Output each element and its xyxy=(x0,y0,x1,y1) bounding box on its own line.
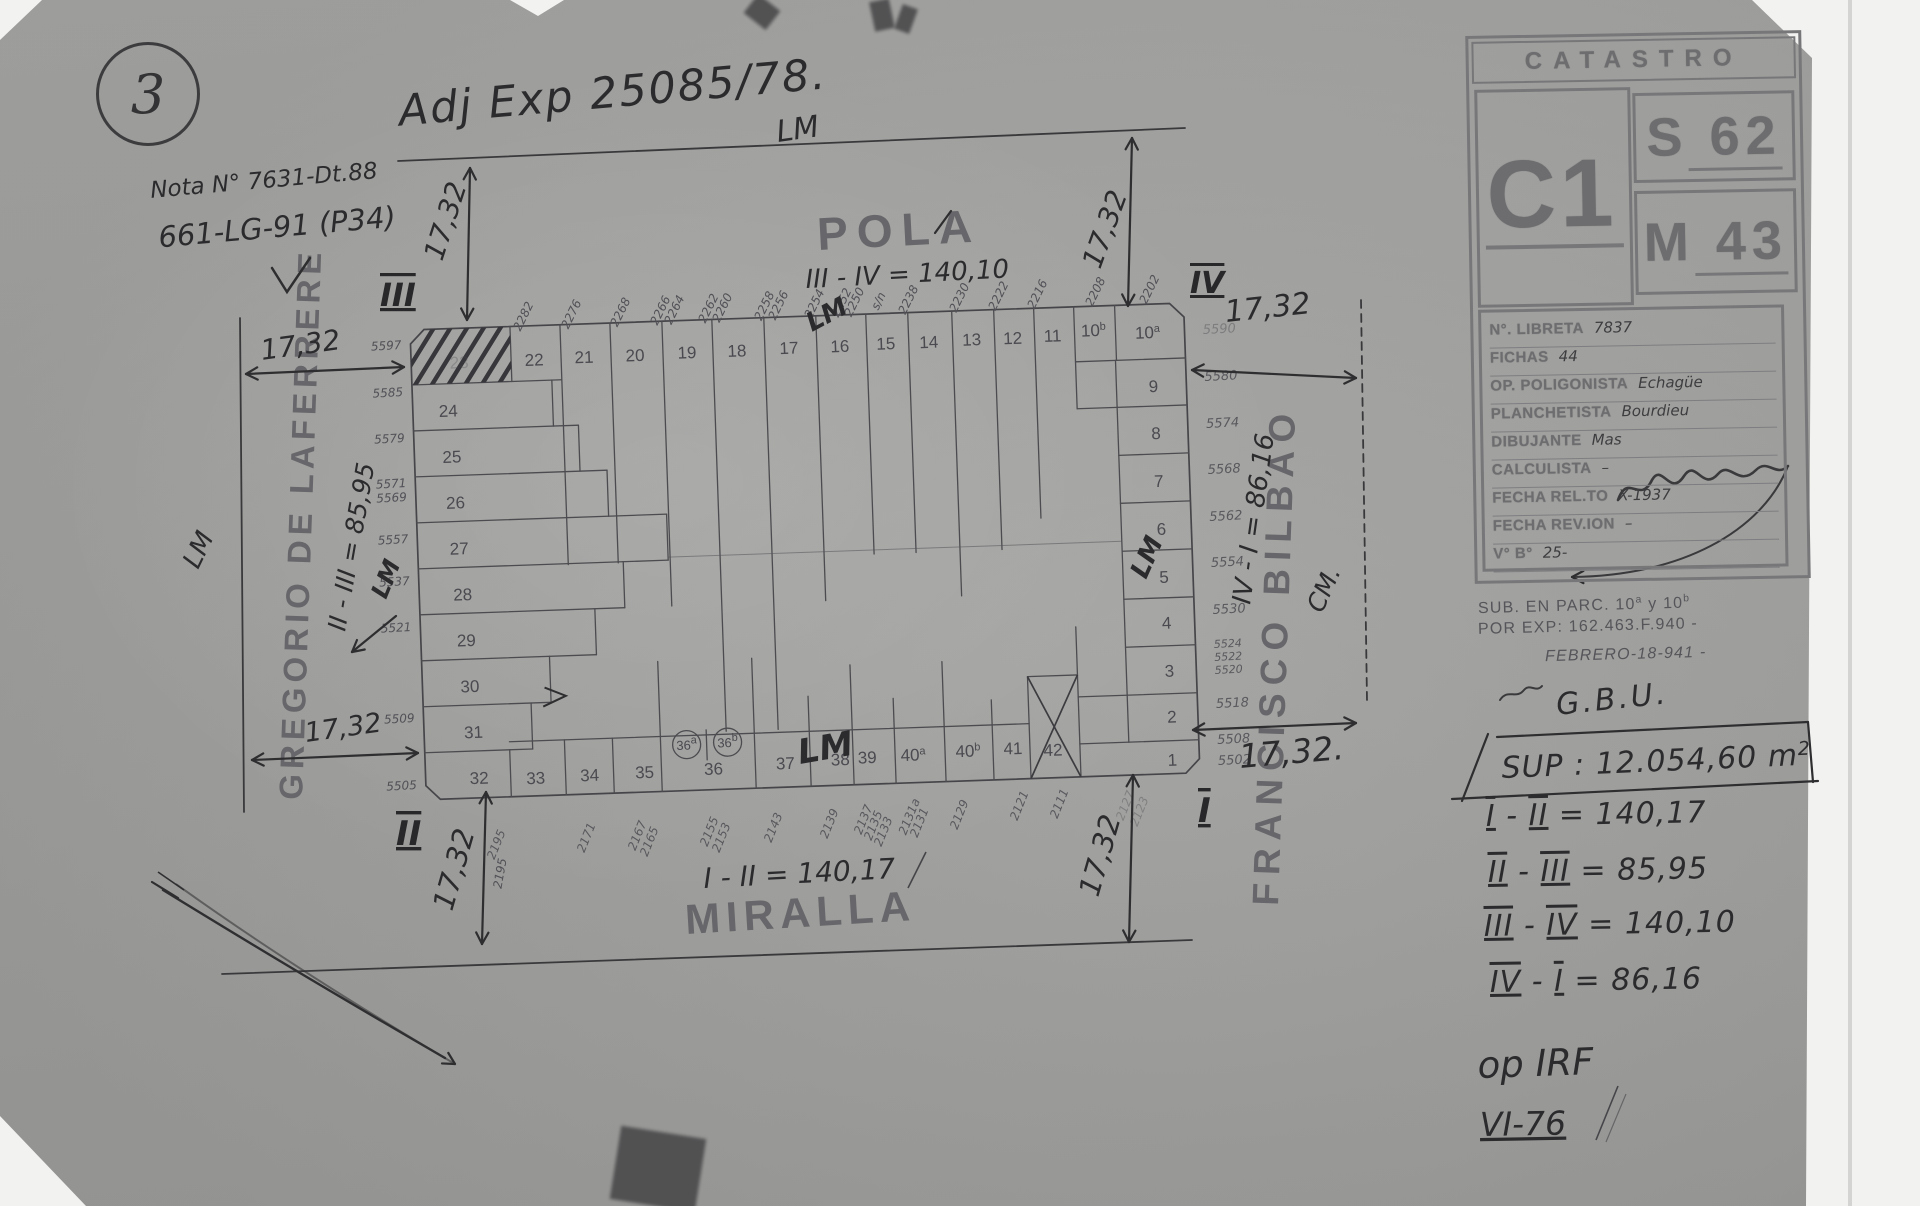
parcel-line xyxy=(1120,501,1190,503)
parcel-line xyxy=(1080,740,1199,744)
street-number-top: 2268 xyxy=(607,295,633,329)
corner-numeral-iv: IV xyxy=(1190,266,1227,301)
street-number-top: 2208 xyxy=(1082,275,1108,309)
manzana-block: 2322212019181716151413121110b10a24252627… xyxy=(393,297,1200,800)
arrowhead xyxy=(1192,364,1204,370)
parcel-number: 8 xyxy=(1151,424,1161,443)
stamp-letter: M xyxy=(1643,212,1695,273)
parcel-line xyxy=(552,380,554,426)
parcel-number: 10a xyxy=(1135,323,1162,343)
boundary-equation: II - III = 85,95 xyxy=(1488,851,1709,890)
equation-left: II - III = 85,95 xyxy=(322,460,380,633)
street-number-bottom: 2129 xyxy=(947,798,971,832)
parcel-line xyxy=(510,327,512,382)
parcel-line xyxy=(764,318,778,730)
parcel-line xyxy=(1078,693,1197,697)
parcel-line xyxy=(662,321,672,606)
parcel-line xyxy=(1126,645,1196,647)
parcel-line xyxy=(610,323,618,563)
parcel-line xyxy=(1124,597,1194,599)
parcel-line xyxy=(415,470,607,477)
parcel-line xyxy=(1027,677,1031,779)
parcel-line xyxy=(991,700,994,780)
parcel-number: 26 xyxy=(446,493,466,513)
street-number-top: 2276 xyxy=(558,297,584,331)
parcel-line xyxy=(595,609,597,655)
arrowhead xyxy=(392,361,404,367)
parcel-line xyxy=(893,698,896,783)
stamp-field-value: Echagüe xyxy=(1638,373,1703,392)
parcel-line xyxy=(942,662,946,782)
street-number-bottom: 2139 xyxy=(817,807,841,841)
dim-17-32: 17,32 xyxy=(258,323,342,367)
parcel-line xyxy=(423,702,551,706)
parcel-number: 30 xyxy=(460,677,480,697)
stamp-field-value: X-1937 xyxy=(1618,485,1671,504)
parcel-number: 18 xyxy=(727,341,747,361)
parcel-line xyxy=(752,658,757,788)
parcel-line xyxy=(1027,675,1077,677)
note-subdivision-text: y 10 xyxy=(1642,595,1683,613)
street-number-top: 2202 xyxy=(1136,273,1162,307)
parcel-line xyxy=(658,662,663,792)
stray-slash xyxy=(1606,1094,1626,1142)
scribble xyxy=(152,882,178,898)
parcel-number: 13 xyxy=(962,330,982,350)
parcel-line xyxy=(564,740,566,795)
parcel-line xyxy=(417,514,667,523)
street-number-left: 5509 xyxy=(384,711,415,727)
corner-numeral-ii: II xyxy=(396,814,421,854)
street-number-top: 2282 xyxy=(510,299,536,333)
dim-17-32: 17,32 xyxy=(1076,186,1134,273)
parcel-number: 31 xyxy=(464,723,484,743)
street-name-pola: POLA xyxy=(816,199,982,260)
catastro-stamp: CATASTRO C1 S 62 M 43 N°. LIBRETA7837FIC… xyxy=(1465,30,1811,584)
stamp-field-label: CALCULISTA xyxy=(1492,460,1592,479)
parcel-number: 32 xyxy=(469,769,489,789)
dimension-line xyxy=(1128,138,1132,306)
parcel-line xyxy=(866,314,874,554)
dim-17-32: 17,32 xyxy=(303,707,384,748)
street-number-right: 5568 xyxy=(1207,461,1241,478)
parcel-number: 2 xyxy=(1167,707,1177,726)
pencil-mark xyxy=(543,687,567,707)
stamp-m-value: M 43 xyxy=(1643,209,1788,274)
parcel-number: 1 xyxy=(1167,750,1177,769)
parcel-line xyxy=(510,750,512,797)
street-number-bottom: 2171 xyxy=(574,821,598,855)
stamp-field-label: PLANCHETISTA xyxy=(1491,403,1612,422)
axis-number-2195: 2195 xyxy=(491,857,510,890)
parcel-number: 28 xyxy=(453,585,473,605)
stamp-field-value: – xyxy=(1601,459,1609,477)
dim-17-32: 17,32 xyxy=(1072,811,1128,900)
stamp-field-row: V° B°25- xyxy=(1493,540,1779,573)
axis-line-miralla xyxy=(222,940,1192,974)
parcel-line xyxy=(509,724,1029,742)
street-number-right: 5520 xyxy=(1214,663,1243,677)
street-number-bottom: 2195 xyxy=(484,828,508,862)
stray-slash xyxy=(1596,1086,1618,1140)
street-number-bottom: 2111 xyxy=(1047,787,1071,821)
street-number-left: 5521 xyxy=(380,620,411,636)
street-number-bottom: 2121 xyxy=(1007,789,1031,823)
parcel-line xyxy=(816,316,826,601)
street-number-left: 5505 xyxy=(386,778,417,794)
parcel-line-faint xyxy=(668,541,1122,557)
stamp-field-label: N°. LIBRETA xyxy=(1489,320,1584,339)
parcel-number: 36a xyxy=(676,734,698,753)
stamp-field-value: 7837 xyxy=(1594,318,1632,337)
parcel-line xyxy=(1076,358,1186,362)
street-number-left: 5557 xyxy=(377,532,409,548)
firma-squiggle xyxy=(1500,686,1542,700)
block-outline xyxy=(410,303,1200,800)
parcel-line xyxy=(1077,407,1117,408)
parcel-line xyxy=(418,560,668,569)
stamp-field-label: FECHA REV.ION xyxy=(1493,515,1615,534)
parcel-number: 5 xyxy=(1159,568,1169,587)
parcel-number: 15 xyxy=(876,334,896,354)
parcel-line xyxy=(667,514,669,560)
parcel-number: 19 xyxy=(677,343,697,363)
parcel-number: 4 xyxy=(1162,614,1172,633)
parcel-number: 20 xyxy=(625,346,645,366)
stamp-title: CATASTRO xyxy=(1471,36,1796,84)
parcel-number: 16 xyxy=(830,337,850,357)
parcel-number: 40a xyxy=(900,745,927,765)
parcel-line xyxy=(623,562,625,608)
parcel-line xyxy=(908,313,916,553)
stamp-circunscripcion: C1 xyxy=(1474,87,1634,308)
stamp-field-value: 44 xyxy=(1559,347,1578,365)
sup-box-line xyxy=(1462,734,1488,801)
stamp-field-label: DIBUJANTE xyxy=(1491,432,1582,451)
lm-mark-top: LM xyxy=(774,109,821,150)
dim-17-32: 17,32 xyxy=(1223,286,1312,330)
parcel-line xyxy=(549,656,551,702)
parcel-number: 11 xyxy=(1043,326,1061,346)
street-number-right: 5518 xyxy=(1216,695,1250,712)
corner-numeral-i: I xyxy=(1198,791,1211,831)
parcel-line xyxy=(420,608,625,615)
parcel-number: 7 xyxy=(1154,472,1164,491)
stamp-field-label: FICHAS xyxy=(1490,349,1549,367)
street-number-right: 5574 xyxy=(1206,415,1240,432)
boundary-equation: I - II = 140,17 xyxy=(1486,795,1707,834)
stamp-fields: N°. LIBRETA7837FICHAS44OP. POLIGONISTAEc… xyxy=(1478,304,1789,571)
parcel-line xyxy=(425,749,533,753)
scribble xyxy=(176,884,455,1064)
parcel-number: 35 xyxy=(635,763,655,783)
parcel-number: 27 xyxy=(449,539,469,559)
street-number-top: s/n xyxy=(868,290,888,312)
parcel-number: 17 xyxy=(779,338,799,358)
parcel-number: 12 xyxy=(1003,329,1023,349)
cm-mark-right: CM. xyxy=(1301,562,1347,617)
lm-mark-left: LM xyxy=(177,527,220,573)
summary-notes: SUP : 12.054,60 m2I - II = 140,17II - II… xyxy=(1452,722,1818,1144)
parcel-number: 40b xyxy=(955,741,981,761)
parcel-line xyxy=(1074,307,1078,409)
parcel-line xyxy=(531,703,533,749)
parcel-number: 29 xyxy=(457,631,477,651)
axis-line-bilbao xyxy=(1361,300,1367,700)
parcel-number: 41 xyxy=(1003,739,1023,759)
stray-slash xyxy=(908,852,926,888)
parcel-line xyxy=(1117,405,1187,407)
stamp-field-value: – xyxy=(1625,514,1633,532)
axis-line-laferrere xyxy=(240,318,244,812)
parcel-number: 22 xyxy=(524,350,544,370)
parcel-line xyxy=(1119,453,1189,455)
parcel-number: 33 xyxy=(526,769,546,789)
parcel-line xyxy=(560,325,568,565)
parcel-line xyxy=(612,738,614,793)
stamp-field-label: FECHA REL.TO xyxy=(1492,488,1608,507)
dimension-line xyxy=(246,367,404,374)
note-subdivision-text: SUB. EN PARC. 10 xyxy=(1478,596,1636,617)
parcel-line xyxy=(952,311,962,596)
axis-lines xyxy=(222,128,1367,974)
street-number-left: 5597 xyxy=(371,338,403,354)
parcel-number: 34 xyxy=(580,766,600,786)
stamp-number: 62 xyxy=(1688,105,1782,171)
dim-17-32: 17,32 xyxy=(417,178,473,264)
boundary-equation: III - IV = 140,10 xyxy=(1484,905,1737,944)
sup-box-line xyxy=(1497,722,1808,737)
scanned-cadastral-sheet: 3 Adj Exp 25085/78. Nota N° 7631-Dt.88 6… xyxy=(0,0,1920,1206)
parcel-number: 14 xyxy=(919,333,939,353)
dim-17-32: 17,32. xyxy=(1237,728,1345,776)
stamp-field-label: V° B° xyxy=(1493,545,1533,563)
sup-total: SUP : 12.054,60 m2 xyxy=(1501,738,1812,786)
dimension-line xyxy=(482,792,486,944)
stamp-letter: S xyxy=(1646,107,1689,168)
stamp-manzana: M 43 xyxy=(1634,188,1798,295)
parcel-number: 24 xyxy=(439,401,459,421)
lm-mark-laferrere: LM xyxy=(366,555,407,602)
parcel-number: 21 xyxy=(574,348,594,368)
street-number-left: 5585 xyxy=(372,385,403,401)
equation-top: III - IV = 140,10 xyxy=(805,254,1010,295)
parcel-line xyxy=(607,470,609,516)
street-number-left: 5569 xyxy=(376,490,407,506)
corner-numeral-iii: III xyxy=(380,276,416,314)
street-number-bottom: 2143 xyxy=(761,811,785,845)
stamp-s-value: S 62 xyxy=(1646,104,1782,168)
parcel-number: 10b xyxy=(1081,321,1107,341)
parcel-line xyxy=(994,310,1002,550)
stamp-number: 43 xyxy=(1694,210,1788,276)
parcel-number: 6 xyxy=(1156,520,1166,539)
stamp-seccion: S 62 xyxy=(1632,90,1796,183)
parcel-line xyxy=(1115,305,1117,360)
boundary-equation: IV - I = 86,16 xyxy=(1490,961,1703,1000)
parcel-number: 25 xyxy=(442,447,462,467)
parcel-number: 42 xyxy=(1043,740,1063,760)
stamp-field-value: Mas xyxy=(1591,430,1621,449)
arrowhead xyxy=(246,374,258,380)
arrowhead xyxy=(1344,378,1356,384)
street-number-left: 5579 xyxy=(374,431,405,447)
parcel-number: 36b xyxy=(717,732,738,751)
parcel-number: 3 xyxy=(1164,662,1174,681)
stamp-field-value: 25- xyxy=(1543,543,1568,561)
parcel-line xyxy=(712,319,726,731)
parcel-number: 36 xyxy=(704,759,724,779)
parcel-number: 39 xyxy=(857,748,877,768)
parcel-line xyxy=(578,425,580,471)
note-sup-b: b xyxy=(1683,593,1690,604)
stamp-field-value: Bourdieu xyxy=(1621,401,1689,420)
dim-17-32: 17,32 xyxy=(426,825,482,914)
parcel-line xyxy=(422,655,597,661)
street-number-top: 2216 xyxy=(1024,277,1050,311)
parcel-number: 23 xyxy=(449,353,469,373)
street-number-left: 5571 xyxy=(375,476,406,492)
arrowhead xyxy=(442,1063,455,1064)
stamp-c-value: C1 xyxy=(1484,145,1624,249)
parcel-line xyxy=(1034,308,1041,518)
op-reference: op IRF xyxy=(1477,1040,1595,1087)
parcel-number: 9 xyxy=(1148,377,1158,396)
parcel-number: 37 xyxy=(776,754,796,774)
parcel-line xyxy=(1076,627,1081,777)
stamp-field-label: OP. POLIGONISTA xyxy=(1490,375,1628,394)
parcel-line xyxy=(850,665,854,785)
vi-reference: VI-76 xyxy=(1479,1104,1566,1144)
